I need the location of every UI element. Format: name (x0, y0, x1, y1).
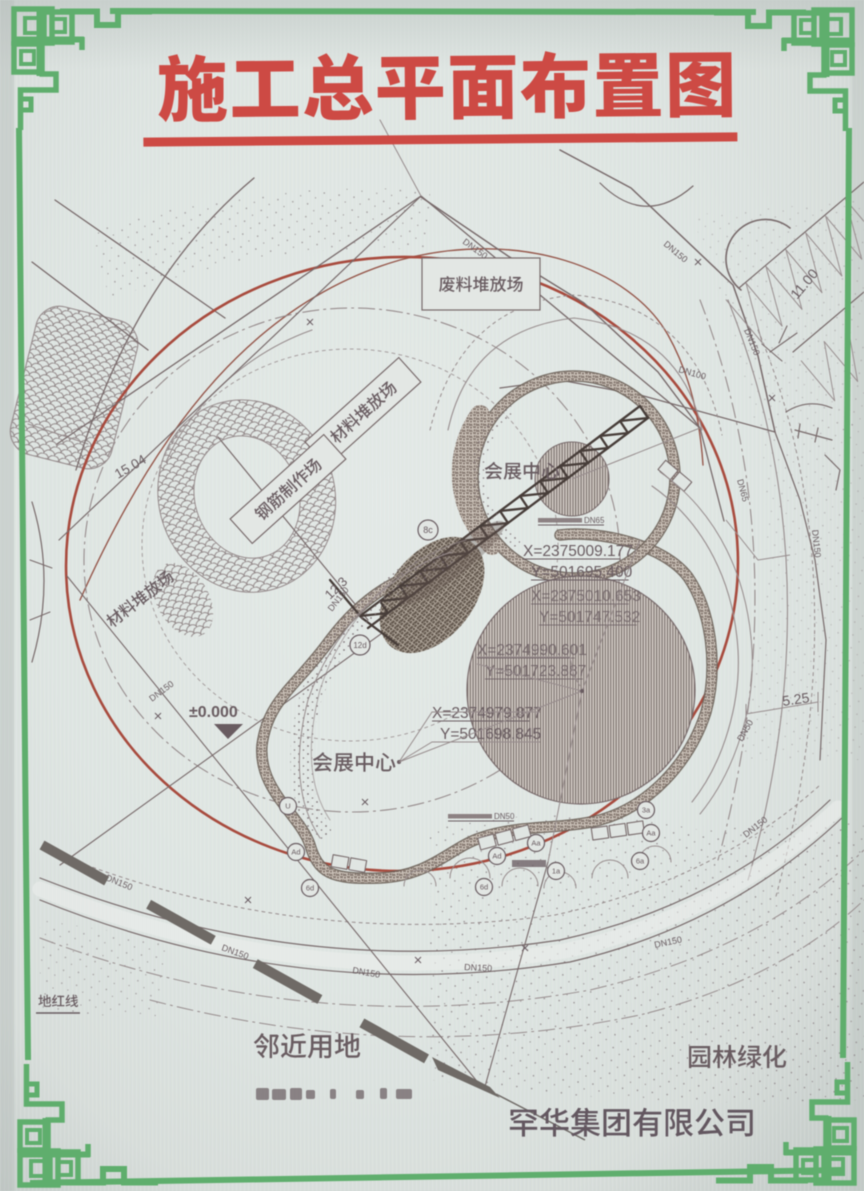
svg-text:DN150: DN150 (464, 962, 493, 973)
svg-text:1a: 1a (552, 867, 561, 876)
svg-text:Y=501723.887: Y=501723.887 (485, 663, 586, 680)
svg-text:6a: 6a (636, 857, 645, 866)
svg-text:Ad: Ad (291, 848, 300, 857)
svg-text:±0.000: ±0.000 (189, 704, 238, 721)
svg-text:X=2374990.601: X=2374990.601 (477, 642, 587, 659)
svg-text:Aa: Aa (646, 829, 656, 838)
svg-text:Y=501695.400: Y=501695.400 (531, 564, 633, 581)
svg-text:DN50: DN50 (494, 812, 515, 821)
svg-text:12d: 12d (353, 641, 366, 650)
svg-text:6d: 6d (480, 883, 488, 892)
svg-text:6d: 6d (306, 884, 314, 893)
svg-text:X=2375010.653: X=2375010.653 (531, 588, 641, 605)
svg-text:U: U (285, 802, 290, 811)
svg-text:DN65: DN65 (584, 516, 605, 525)
svg-text:X=2375009.177: X=2375009.177 (523, 543, 633, 560)
svg-text:X=2374979.877: X=2374979.877 (432, 705, 542, 722)
svg-text:Ad: Ad (492, 852, 501, 861)
svg-text:Y=501747.532: Y=501747.532 (539, 609, 640, 626)
svg-text:3a: 3a (642, 806, 651, 815)
svg-text:Aa: Aa (531, 839, 541, 848)
svg-text:8c: 8c (423, 525, 433, 535)
